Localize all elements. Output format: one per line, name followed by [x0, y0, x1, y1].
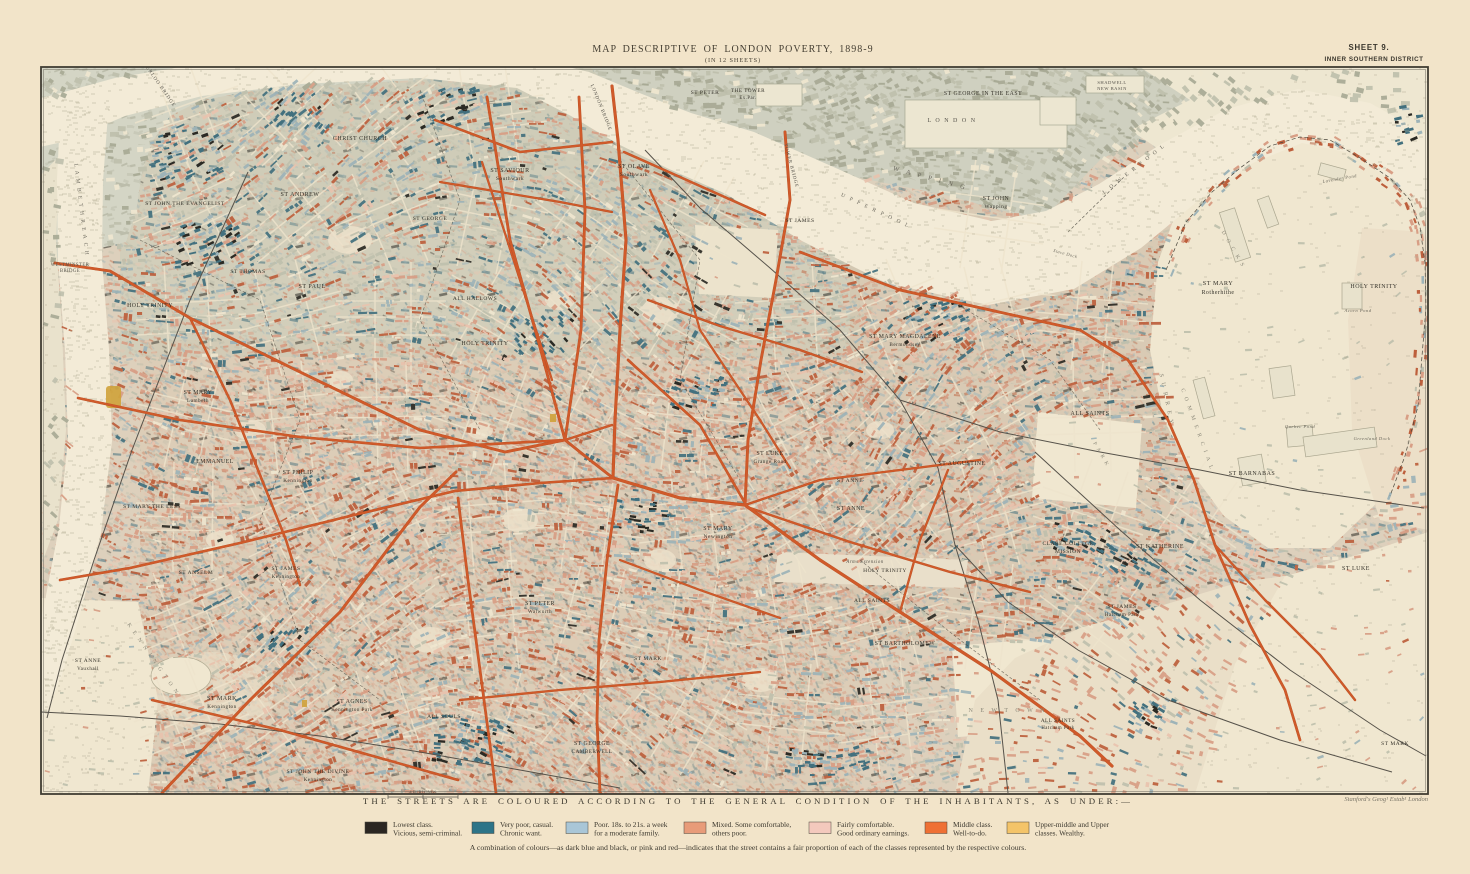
- svg-text:Hatcham Park: Hatcham Park: [1041, 726, 1074, 731]
- svg-text:Quebec Pond: Quebec Pond: [1285, 424, 1316, 429]
- svg-text:Hatcham Park: Hatcham Park: [1105, 613, 1139, 618]
- svg-text:INNER SOUTHERN DISTRICT: INNER SOUTHERN DISTRICT: [1325, 56, 1424, 63]
- svg-text:Southwark: Southwark: [620, 172, 648, 178]
- svg-text:Grange Road: Grange Road: [753, 459, 786, 465]
- svg-text:Kennington: Kennington: [283, 478, 313, 484]
- svg-text:THE STREETS ARE COLOURED ACCOR: THE STREETS ARE COLOURED ACCORDING TO TH…: [363, 796, 1133, 806]
- svg-text:HOLY TRINITY: HOLY TRINITY: [1350, 284, 1397, 290]
- svg-text:ST BARNABAS: ST BARNABAS: [1229, 471, 1276, 477]
- svg-text:ST KATHERINE: ST KATHERINE: [1136, 544, 1184, 550]
- svg-text:SHADWELL: SHADWELL: [1097, 80, 1126, 85]
- svg-text:ST LUKE: ST LUKE: [756, 451, 783, 457]
- svg-text:HOLY TRINITY: HOLY TRINITY: [461, 341, 508, 347]
- svg-text:(IN 12 SHEETS): (IN 12 SHEETS): [705, 57, 761, 64]
- svg-text:Kennington: Kennington: [207, 704, 237, 710]
- svg-text:ALL SOULS: ALL SOULS: [427, 714, 461, 720]
- svg-text:Stanford's Geog¹ Estab¹ London: Stanford's Geog¹ Estab¹ London: [1344, 796, 1428, 803]
- svg-text:ST JOHN THE DIVINE: ST JOHN THE DIVINE: [286, 769, 349, 775]
- svg-text:ST ANNE: ST ANNE: [837, 478, 863, 484]
- svg-text:Rotherhithe: Rotherhithe: [1202, 290, 1235, 296]
- svg-text:Bermondsey: Bermondsey: [889, 342, 920, 348]
- svg-text:Good ordinary earnings.: Good ordinary earnings.: [837, 829, 909, 838]
- svg-text:ST MARY THE LESS: ST MARY THE LESS: [123, 504, 181, 510]
- svg-text:ST GEORGE: ST GEORGE: [413, 216, 448, 222]
- svg-text:ST JOHN: ST JOHN: [983, 196, 1010, 202]
- svg-text:ST MARY MAGDALENE: ST MARY MAGDALENE: [869, 334, 941, 340]
- svg-text:N E W T O W N: N E W T O W N: [968, 708, 1047, 714]
- svg-text:ST LUKE: ST LUKE: [1342, 566, 1370, 572]
- svg-text:ST BARTHOLOMEW: ST BARTHOLOMEW: [875, 641, 936, 647]
- svg-text:ST JAMES: ST JAMES: [1107, 604, 1136, 610]
- svg-text:A combination of colours—as da: A combination of colours—as dark blue an…: [470, 843, 1026, 852]
- svg-text:ST MARY: ST MARY: [184, 390, 213, 396]
- svg-text:MAP DESCRIPTIVE OF LONDON POVE: MAP DESCRIPTIVE OF LONDON POVERTY, 1898-…: [592, 44, 873, 55]
- svg-text:ALL SAINTS: ALL SAINTS: [1041, 718, 1075, 724]
- svg-text:ST PAUL: ST PAUL: [298, 284, 325, 290]
- svg-text:ST PETER: ST PETER: [525, 601, 555, 607]
- svg-text:Ex.Par.: Ex.Par.: [739, 96, 756, 101]
- svg-text:BRIDGE: BRIDGE: [60, 269, 80, 274]
- svg-text:Kennington: Kennington: [304, 778, 333, 783]
- svg-text:others poor.: others poor.: [712, 829, 747, 838]
- svg-text:ALL SAINTS: ALL SAINTS: [1071, 411, 1110, 417]
- svg-text:CHRIST CHURCH: CHRIST CHURCH: [333, 136, 387, 142]
- svg-text:Kennington Park: Kennington Park: [331, 708, 373, 713]
- svg-text:HOLY TRINITY: HOLY TRINITY: [127, 303, 173, 309]
- svg-text:Wapping: Wapping: [984, 204, 1007, 210]
- svg-text:ST AUGUSTINE: ST AUGUSTINE: [939, 461, 986, 467]
- svg-text:ST JAMES: ST JAMES: [271, 566, 300, 572]
- svg-text:ST ANSELM: ST ANSELM: [179, 570, 214, 576]
- svg-text:classes. Wealthy.: classes. Wealthy.: [1035, 829, 1085, 838]
- svg-text:Southwark: Southwark: [496, 176, 524, 182]
- svg-text:ST GEORGE IN THE EAST: ST GEORGE IN THE EAST: [944, 91, 1022, 97]
- svg-text:Lambeth: Lambeth: [187, 398, 209, 404]
- svg-text:Vauxhall: Vauxhall: [77, 667, 99, 672]
- svg-text:Greenland Dock: Greenland Dock: [1354, 436, 1391, 441]
- svg-text:ALL HALLOWS: ALL HALLOWS: [453, 296, 497, 302]
- svg-text:ST MARY: ST MARY: [1203, 280, 1233, 287]
- svg-text:ST PETER: ST PETER: [691, 90, 720, 96]
- svg-text:SHEET 9.: SHEET 9.: [1348, 43, 1389, 52]
- svg-text:ST MARK: ST MARK: [207, 696, 237, 702]
- svg-text:ST MARK: ST MARK: [1381, 741, 1409, 747]
- svg-text:ST ANNE: ST ANNE: [75, 658, 101, 664]
- svg-text:L O N D O N: L O N D O N: [927, 118, 976, 124]
- svg-text:EMMANUEL: EMMANUEL: [196, 459, 234, 465]
- svg-text:ST JOHN THE EVANGELIST: ST JOHN THE EVANGELIST: [145, 201, 225, 207]
- svg-text:NEW BASIN: NEW BASIN: [1097, 86, 1127, 91]
- svg-text:ST OLAVE: ST OLAVE: [618, 164, 650, 170]
- svg-text:ST GEORGE: ST GEORGE: [574, 741, 610, 747]
- svg-text:ST ANNE: ST ANNE: [837, 506, 865, 512]
- svg-text:ST MARK: ST MARK: [634, 656, 662, 662]
- svg-text:CAMBERWELL: CAMBERWELL: [571, 749, 612, 755]
- svg-text:Arms Extension: Arms Extension: [845, 560, 883, 565]
- svg-text:ST MARY: ST MARY: [703, 526, 733, 532]
- svg-text:Well-to-do.: Well-to-do.: [953, 829, 987, 838]
- svg-text:Kennington: Kennington: [272, 575, 301, 580]
- svg-text:Acorn Pond: Acorn Pond: [1343, 308, 1371, 313]
- svg-text:4 FURLONGS: 4 FURLONGS: [409, 790, 437, 795]
- svg-text:Newington: Newington: [704, 534, 733, 540]
- svg-text:for a moderate family.: for a moderate family.: [594, 829, 660, 838]
- svg-text:MISSION: MISSION: [1055, 549, 1081, 555]
- svg-text:Chronic want.: Chronic want.: [500, 829, 542, 838]
- svg-text:ALL SAINTS: ALL SAINTS: [854, 598, 890, 604]
- svg-text:ST ANDREW: ST ANDREW: [281, 192, 320, 198]
- svg-text:ST JAMES: ST JAMES: [785, 218, 814, 224]
- svg-text:ST SAVIOUR: ST SAVIOUR: [490, 168, 529, 174]
- svg-text:CLARE COLLEGE: CLARE COLLEGE: [1043, 541, 1094, 547]
- svg-text:ST PHILIP: ST PHILIP: [283, 470, 314, 476]
- svg-text:HOLY TRINITY: HOLY TRINITY: [863, 568, 907, 574]
- svg-text:THE TOWER: THE TOWER: [731, 88, 765, 94]
- svg-text:ST AGNES: ST AGNES: [336, 699, 367, 705]
- svg-text:Walworth: Walworth: [528, 609, 552, 615]
- svg-text:WESTMINSTER: WESTMINSTER: [51, 263, 90, 268]
- svg-text:Vicious, semi-criminal.: Vicious, semi-criminal.: [393, 829, 462, 838]
- svg-text:ST THOMAS: ST THOMAS: [230, 269, 265, 275]
